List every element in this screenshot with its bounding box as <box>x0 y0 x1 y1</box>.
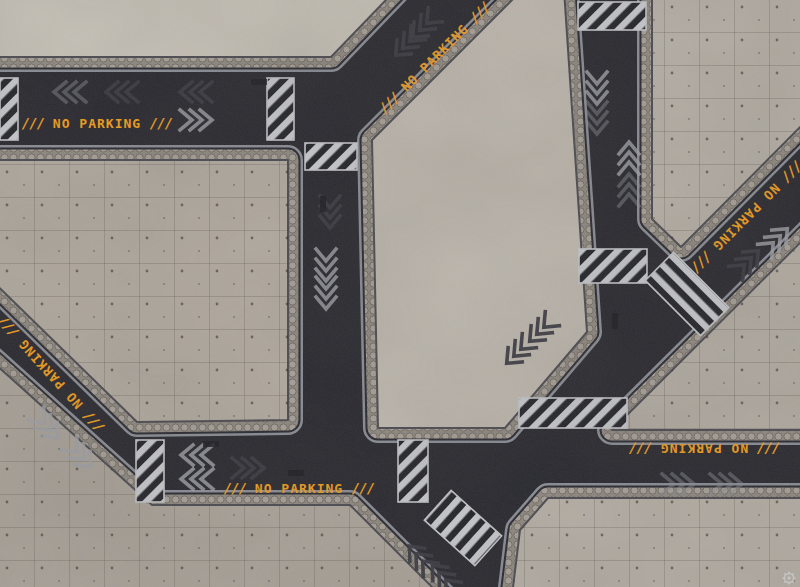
gear-icon <box>783 572 796 585</box>
grain-texture-overlay <box>0 0 800 587</box>
battle-mat-image: /// NO PARKING /// /// NO PARKING /// //… <box>0 0 800 587</box>
mat-scene: /// NO PARKING /// /// NO PARKING /// //… <box>0 0 800 587</box>
